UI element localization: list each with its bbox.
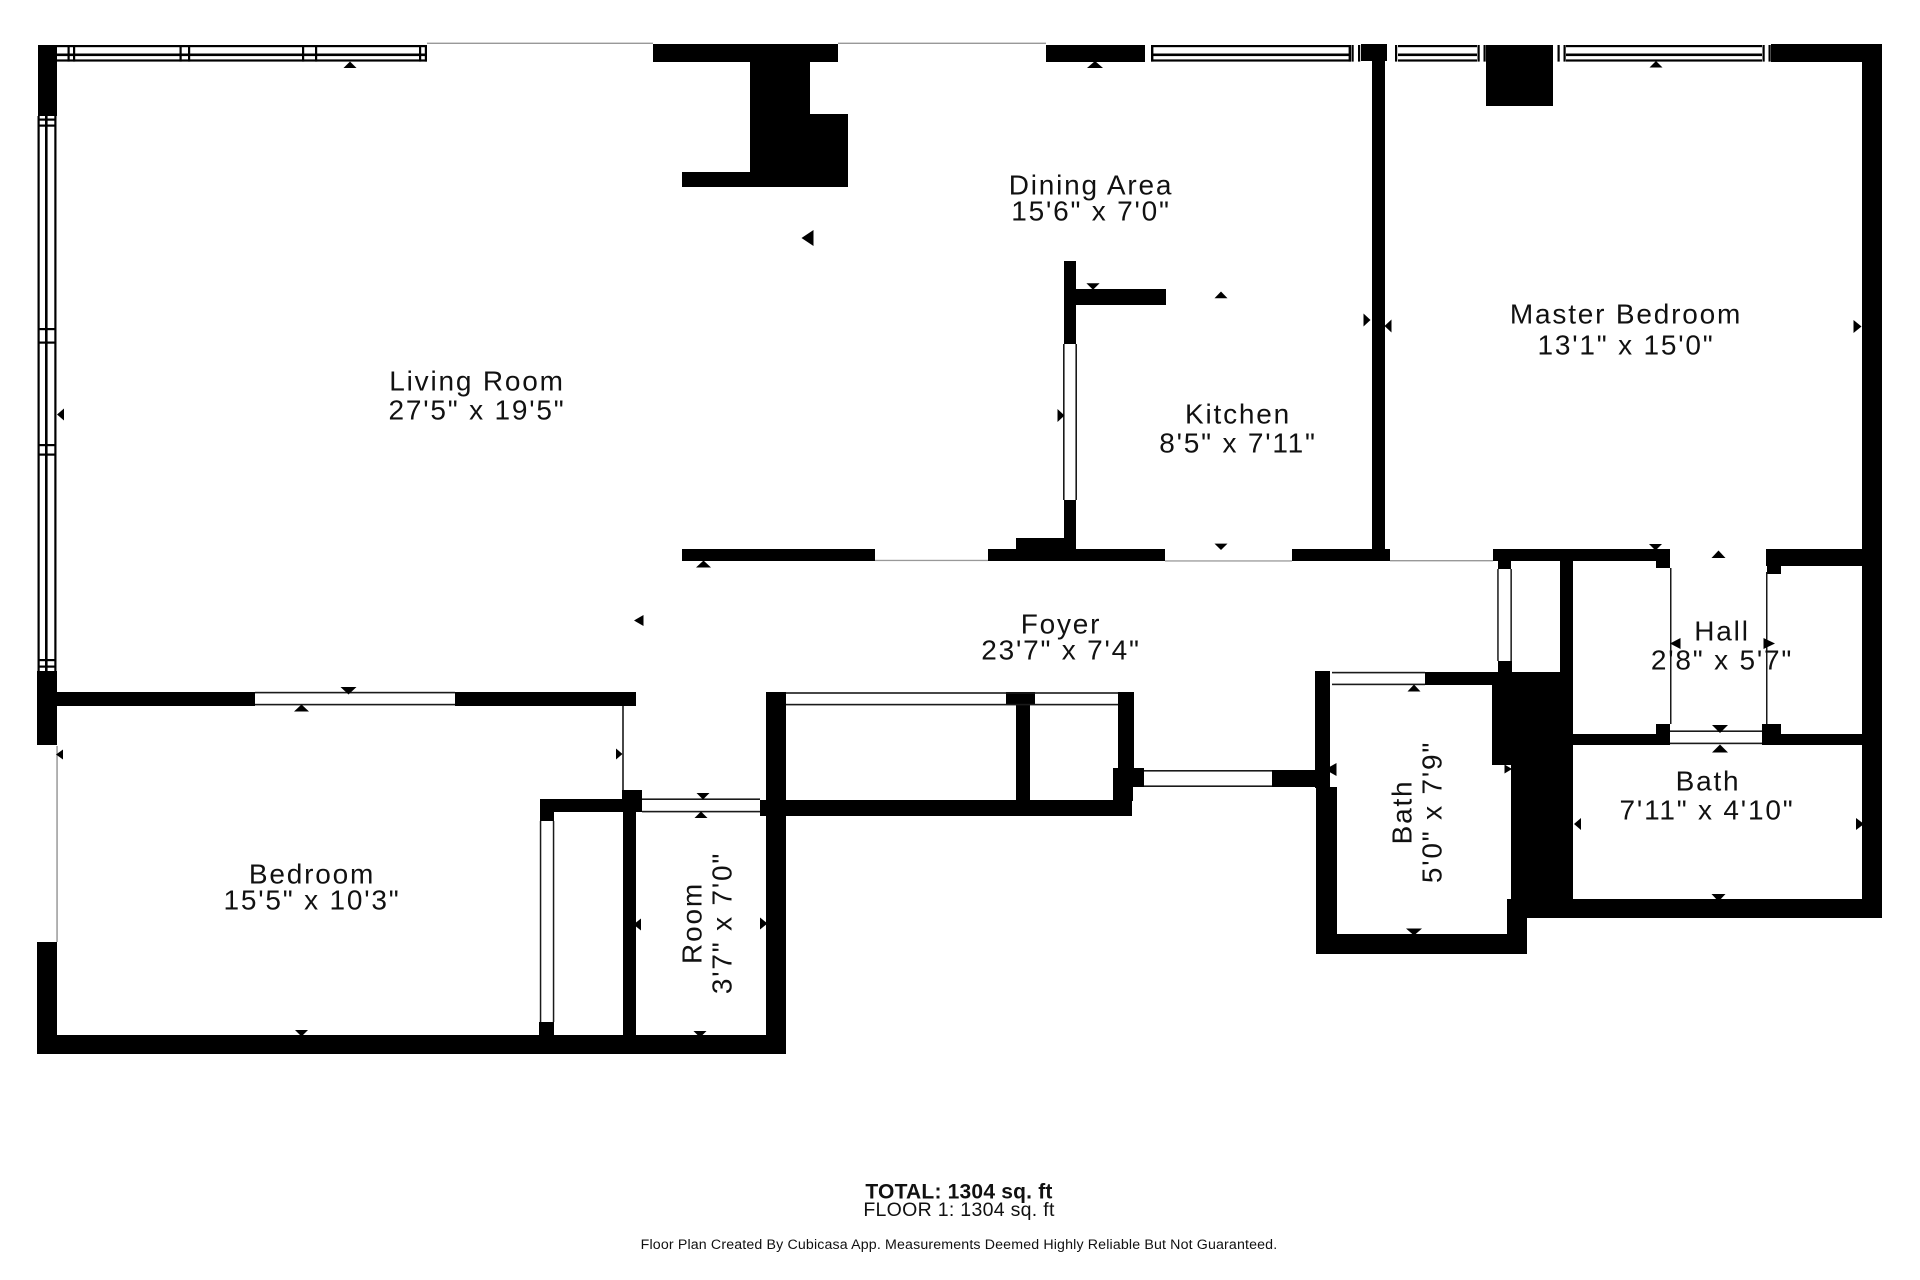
svg-text:8'5" x 7'11": 8'5" x 7'11" [1159,428,1317,459]
svg-text:Master Bedroom: Master Bedroom [1510,299,1742,330]
svg-text:Kitchen: Kitchen [1185,399,1291,430]
svg-text:3'7" x 7'0": 3'7" x 7'0" [707,852,738,994]
svg-text:15'5" x 10'3": 15'5" x 10'3" [224,885,401,916]
svg-text:5'0" x 7'9": 5'0" x 7'9" [1417,741,1448,883]
svg-text:Living Room: Living Room [389,366,564,397]
svg-text:15'6" x 7'0": 15'6" x 7'0" [1011,196,1171,227]
svg-text:13'1" x 15'0": 13'1" x 15'0" [1538,330,1715,361]
svg-text:Room: Room [677,882,708,964]
svg-text:7'11" x 4'10": 7'11" x 4'10" [1620,795,1795,826]
svg-text:Hall: Hall [1694,616,1749,647]
svg-text:2'8" x 5'7": 2'8" x 5'7" [1651,645,1793,676]
svg-text:Bath: Bath [1387,780,1418,845]
svg-text:Bath: Bath [1676,766,1741,797]
svg-text:23'7" x 7'4": 23'7" x 7'4" [981,635,1141,666]
svg-text:27'5" x 19'5": 27'5" x 19'5" [389,395,566,426]
svg-text:FLOOR 1: 1304 sq. ft: FLOOR 1: 1304 sq. ft [863,1199,1055,1221]
svg-text:Floor Plan Created By Cubicasa: Floor Plan Created By Cubicasa App. Meas… [641,1237,1278,1253]
